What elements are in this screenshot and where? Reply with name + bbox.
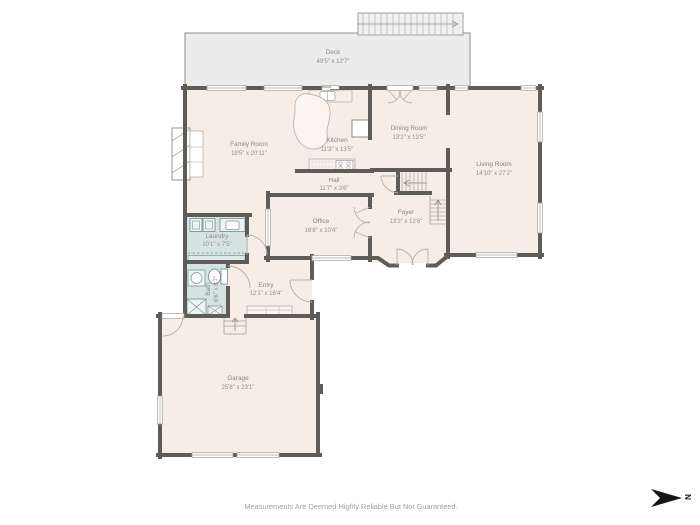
- kitchen-dims: 11'3" x 13'5": [321, 147, 353, 153]
- compass: N: [651, 489, 692, 507]
- window: [419, 86, 437, 91]
- window: [266, 209, 271, 246]
- garage-door: [192, 453, 233, 458]
- fireplace: [172, 128, 203, 180]
- office-name: Office: [313, 218, 330, 225]
- door-opening: [387, 86, 413, 91]
- window: [207, 86, 246, 91]
- floor-plan-canvas: Deck 49'5" x 12'7" Family Room 19'5" x 2…: [0, 0, 700, 525]
- floor-plan-page: Deck 49'5" x 12'7" Family Room 19'5" x 2…: [0, 0, 700, 525]
- family-room-name: Family Room: [230, 141, 268, 148]
- garage-east-pier: [318, 384, 323, 394]
- family-room-dims: 19'5" x 20'11": [231, 151, 267, 157]
- foyer-name: Foyer: [398, 209, 415, 216]
- stove-fixture: [336, 161, 353, 171]
- window: [264, 86, 302, 91]
- compass-north-arrow-icon: [651, 489, 682, 507]
- bath-dims: 6'6" x 8'7": [214, 276, 220, 302]
- living-room-dims: 14'10" x 27'2": [476, 171, 512, 177]
- office-dims: 16'8" x 10'4": [305, 228, 338, 234]
- window: [158, 396, 163, 424]
- dryer-fixture: [203, 219, 215, 232]
- window: [476, 253, 517, 258]
- entry-name: Entry: [259, 282, 275, 289]
- sliding-door: [322, 86, 339, 91]
- bath-name: Bath: [205, 282, 212, 296]
- door-opening: [162, 314, 184, 319]
- laundry-shelf: [188, 256, 245, 261]
- laundry-sink-fixture: [226, 221, 239, 230]
- living-room-name: Living Room: [476, 161, 512, 168]
- washer-fixture: [190, 219, 202, 232]
- dining-room-dims: 13'2" x 13'5": [393, 135, 426, 141]
- window: [538, 203, 543, 233]
- hall-name: Hall: [328, 177, 339, 184]
- garage-door: [237, 453, 279, 458]
- window: [521, 86, 536, 91]
- fireplace-hearth: [190, 131, 203, 177]
- compass-north-label: N: [683, 494, 692, 500]
- window: [312, 256, 351, 261]
- hall-dims: 11'7" x 3'6": [319, 186, 348, 192]
- window: [538, 112, 543, 142]
- deck-name: Deck: [326, 49, 341, 56]
- laundry-dims: 10'1" x 7'5": [202, 242, 232, 248]
- window: [455, 86, 468, 91]
- deck-dims: 49'5" x 12'7": [317, 59, 350, 65]
- entry-dims: 12'1" x 16'4": [250, 291, 283, 297]
- dining-room-name: Dining Room: [391, 125, 428, 132]
- kitchen-island: [293, 94, 330, 149]
- garage-dims: 25'8" x 23'1": [222, 385, 255, 391]
- bath-sink-fixture: [191, 273, 202, 284]
- disclaimer-text: Measurements Are Deemed Highly Reliable …: [244, 502, 457, 511]
- kitchen-name: Kitchen: [326, 137, 348, 144]
- laundry-name: Laundry: [205, 233, 229, 240]
- refrigerator-fixture: [352, 120, 370, 137]
- garage-name: Garage: [227, 375, 249, 382]
- foyer-dims: 13'2" x 12'6": [390, 219, 423, 225]
- toilet-tank: [221, 269, 228, 284]
